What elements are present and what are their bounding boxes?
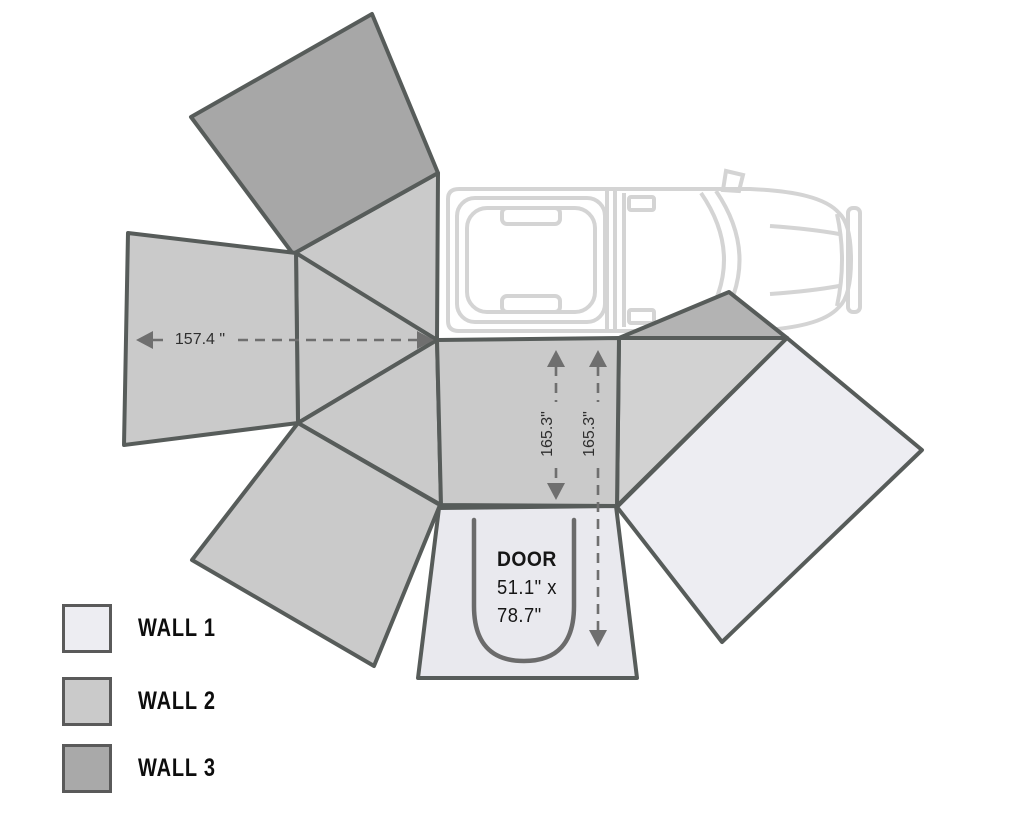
wall3-label: WALL 3 <box>138 754 216 783</box>
wall2-label: WALL 2 <box>138 687 216 716</box>
left-depth-dimension-label: 165.3" <box>538 402 558 466</box>
diagram-canvas: 157.4 " 165.3" 165.3" DOOR 51.1" x 78.7"… <box>0 0 1024 819</box>
door-height-text: 78.7" <box>497 606 557 626</box>
vehicle-handle-top <box>629 197 654 210</box>
vehicle-bed-outer <box>457 198 605 322</box>
legend: WALL 1 WALL 2 WALL 3 <box>62 604 235 793</box>
legend-row-wall3: WALL 3 <box>62 744 235 793</box>
wall1-label: WALL 1 <box>138 614 216 643</box>
wall3-swatch <box>62 744 112 793</box>
vehicle-front-bumper <box>848 208 860 312</box>
vehicle-hood-line-bottom <box>770 286 839 294</box>
door-label-group: DOOR 51.1" x 78.7" <box>497 549 557 626</box>
width-dimension-label: 157.4 " <box>168 330 232 350</box>
vehicle-bed-tab-top <box>502 208 560 224</box>
door-title: DOOR <box>497 549 557 570</box>
wall2-swatch <box>62 677 112 726</box>
legend-row-wall1: WALL 1 <box>62 604 235 653</box>
vehicle-grille-line <box>837 214 842 306</box>
wall1-swatch <box>62 604 112 653</box>
vehicle-bed-tab-bottom <box>502 296 560 312</box>
door-width-text: 51.1" x <box>497 578 557 598</box>
awning-segment-small-dark <box>619 292 787 338</box>
vehicle-hood-line-top <box>770 226 839 234</box>
legend-row-wall2: WALL 2 <box>62 677 235 726</box>
vehicle-handle-bottom <box>629 310 654 323</box>
right-depth-dimension-label: 165.3" <box>580 402 600 466</box>
